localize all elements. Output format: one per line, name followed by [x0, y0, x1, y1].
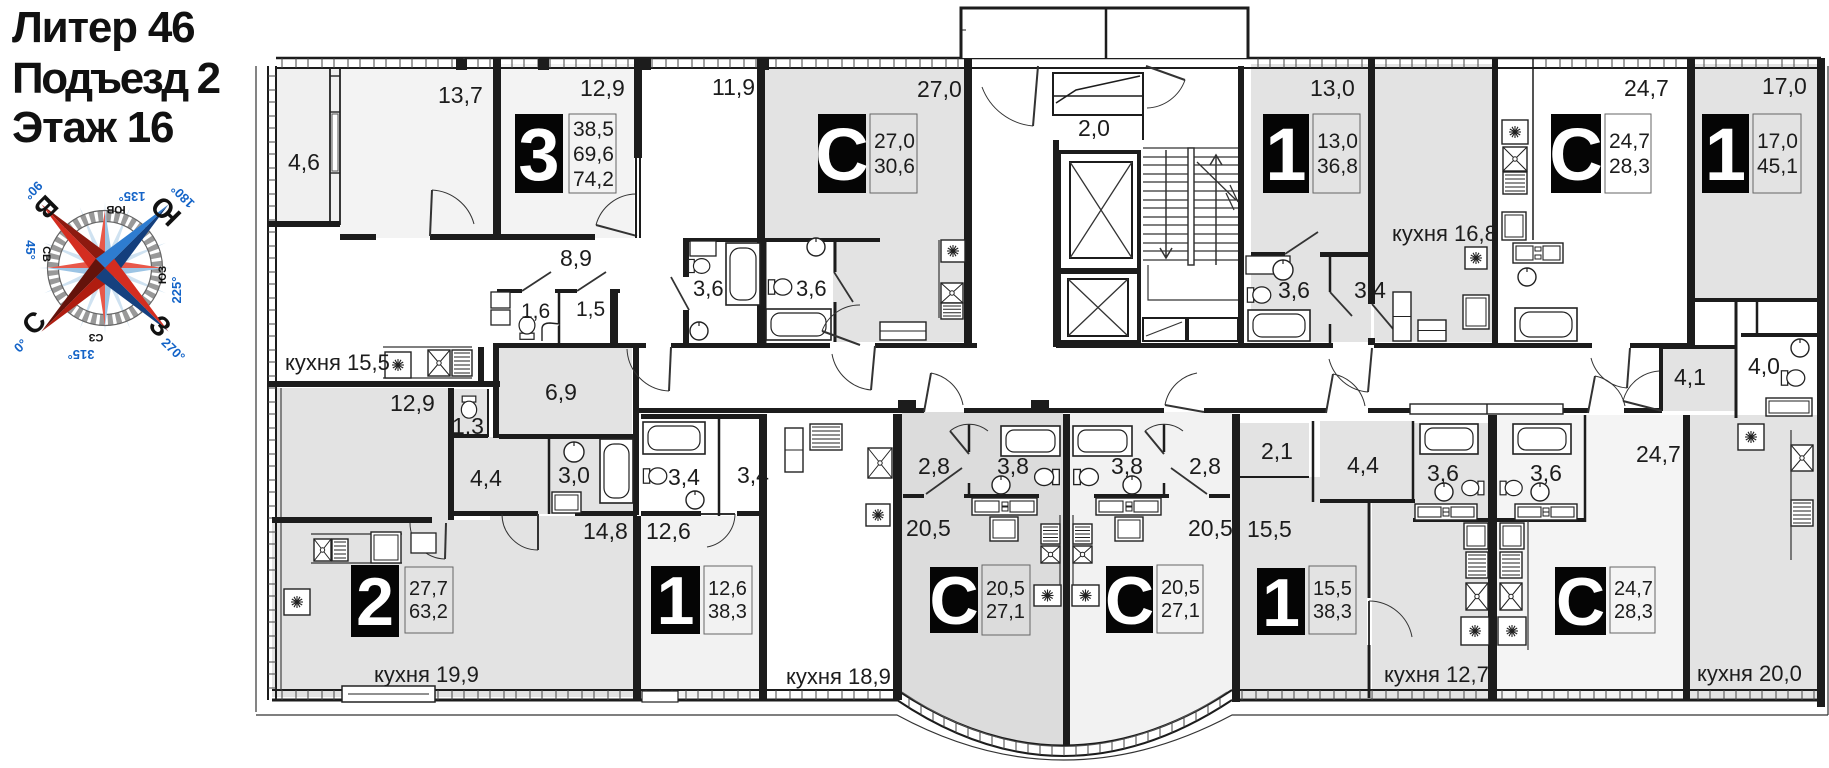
svg-text:3,0: 3,0 [558, 462, 590, 488]
svg-text:3: 3 [518, 113, 559, 196]
svg-text:4,0: 4,0 [1748, 353, 1780, 379]
svg-text:20,5: 20,5 [1161, 577, 1200, 599]
svg-text:69,6: 69,6 [573, 143, 614, 166]
svg-text:63,2: 63,2 [409, 601, 448, 623]
svg-text:12,9: 12,9 [580, 75, 625, 101]
svg-text:кухня 18,9: кухня 18,9 [786, 664, 891, 689]
svg-text:1: 1 [657, 563, 695, 639]
svg-text:27,0: 27,0 [917, 76, 962, 102]
svg-text:11,9: 11,9 [712, 74, 755, 100]
svg-text:20,5: 20,5 [1188, 515, 1233, 541]
svg-text:3,4: 3,4 [737, 462, 769, 488]
svg-text:С: С [1556, 564, 1605, 640]
svg-text:СВ: СВ [40, 246, 52, 262]
svg-text:С: С [929, 563, 978, 639]
svg-text:28,3: 28,3 [1614, 601, 1653, 623]
svg-text:3,6: 3,6 [1427, 460, 1459, 486]
svg-text:45°: 45° [23, 240, 38, 260]
svg-text:15,5: 15,5 [1247, 516, 1292, 542]
svg-text:135°: 135° [119, 189, 146, 204]
svg-text:3,6: 3,6 [1530, 460, 1562, 486]
svg-text:ЮВ: ЮВ [106, 203, 125, 215]
svg-text:13,0: 13,0 [1317, 130, 1358, 153]
svg-text:1: 1 [1705, 113, 1746, 196]
svg-text:3,6: 3,6 [693, 276, 724, 301]
svg-text:3,8: 3,8 [997, 453, 1029, 479]
svg-text:38,3: 38,3 [708, 601, 747, 623]
svg-text:кухня 12,7: кухня 12,7 [1384, 662, 1489, 687]
svg-text:36,8: 36,8 [1317, 155, 1358, 178]
svg-text:14,8: 14,8 [583, 518, 628, 544]
svg-text:6,9: 6,9 [545, 379, 577, 405]
svg-text:13,0: 13,0 [1310, 75, 1355, 101]
svg-text:ЮЗ: ЮЗ [157, 266, 169, 284]
svg-text:24,7: 24,7 [1609, 130, 1650, 153]
svg-text:2,0: 2,0 [1078, 115, 1110, 141]
svg-text:2,8: 2,8 [1189, 453, 1221, 479]
svg-text:3,4: 3,4 [1354, 277, 1386, 303]
svg-text:28,3: 28,3 [1609, 155, 1650, 178]
svg-text:38,3: 38,3 [1313, 601, 1352, 623]
svg-text:24,7: 24,7 [1636, 441, 1681, 467]
svg-text:4,4: 4,4 [1347, 452, 1379, 478]
svg-text:Подъезд 2: Подъезд 2 [12, 54, 220, 103]
svg-text:1: 1 [1265, 113, 1306, 196]
svg-text:15,5: 15,5 [1313, 578, 1352, 600]
svg-text:1,6: 1,6 [521, 300, 550, 323]
svg-text:кухня 19,9: кухня 19,9 [374, 662, 479, 687]
svg-text:13,7: 13,7 [438, 82, 483, 108]
svg-text:3,8: 3,8 [1111, 453, 1143, 479]
svg-text:4,6: 4,6 [288, 149, 320, 175]
svg-text:С: С [1105, 563, 1154, 639]
svg-text:17,0: 17,0 [1757, 130, 1798, 153]
svg-text:1: 1 [1262, 565, 1300, 641]
svg-text:3,6: 3,6 [796, 276, 827, 301]
svg-text:30,6: 30,6 [874, 155, 915, 178]
svg-text:Этаж 16: Этаж 16 [12, 103, 173, 152]
svg-text:20,5: 20,5 [986, 578, 1025, 600]
svg-text:2: 2 [356, 564, 394, 640]
svg-text:20,5: 20,5 [906, 515, 951, 541]
svg-text:4,4: 4,4 [470, 465, 502, 491]
svg-text:12,6: 12,6 [646, 518, 691, 544]
svg-text:17,0: 17,0 [1762, 73, 1807, 99]
svg-text:27,7: 27,7 [409, 578, 448, 600]
svg-text:2,8: 2,8 [918, 453, 950, 479]
svg-text:12,6: 12,6 [708, 578, 747, 600]
svg-text:2,1: 2,1 [1261, 438, 1293, 464]
svg-text:74,2: 74,2 [573, 168, 614, 191]
svg-text:24,7: 24,7 [1624, 75, 1669, 101]
svg-text:С: С [815, 113, 868, 196]
svg-text:3,4: 3,4 [668, 464, 700, 490]
svg-text:3,6: 3,6 [1278, 277, 1310, 303]
svg-text:кухня 15,5: кухня 15,5 [285, 350, 390, 375]
svg-text:27,0: 27,0 [874, 130, 915, 153]
svg-text:12,9: 12,9 [390, 390, 435, 416]
svg-text:225°: 225° [169, 277, 184, 304]
svg-text:кухня 20,0: кухня 20,0 [1697, 661, 1802, 686]
svg-text:8,9: 8,9 [560, 245, 592, 271]
svg-text:1,3: 1,3 [452, 413, 484, 439]
svg-text:С: С [1549, 113, 1602, 196]
svg-text:27,1: 27,1 [1161, 600, 1200, 622]
svg-text:38,5: 38,5 [573, 118, 614, 141]
svg-text:27,1: 27,1 [986, 601, 1025, 623]
svg-text:Литер 46: Литер 46 [12, 3, 194, 52]
svg-text:4,1: 4,1 [1674, 364, 1706, 390]
svg-text:24,7: 24,7 [1614, 578, 1653, 600]
svg-text:45,1: 45,1 [1757, 155, 1798, 178]
svg-text:315°: 315° [68, 347, 95, 362]
svg-text:кухня 16,8: кухня 16,8 [1392, 221, 1497, 246]
svg-text:1,5: 1,5 [576, 298, 605, 321]
svg-text:СЗ: СЗ [89, 331, 104, 343]
